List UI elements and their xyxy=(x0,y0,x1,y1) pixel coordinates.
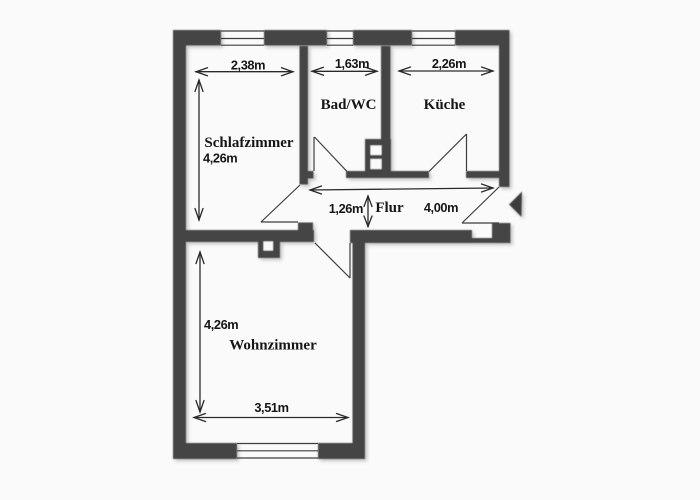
svg-text:1,26m: 1,26m xyxy=(329,201,363,216)
svg-text:2,26m: 2,26m xyxy=(432,56,466,71)
svg-text:2,38m: 2,38m xyxy=(231,58,265,73)
svg-text:Flur: Flur xyxy=(375,200,404,216)
svg-text:Wohnzimmer: Wohnzimmer xyxy=(229,338,317,354)
svg-text:4,26m: 4,26m xyxy=(203,151,237,166)
svg-text:Bad/WC: Bad/WC xyxy=(321,97,377,113)
svg-text:Schlafzimmer: Schlafzimmer xyxy=(204,135,293,151)
svg-text:1,63m: 1,63m xyxy=(335,56,369,71)
svg-text:4,26m: 4,26m xyxy=(204,317,238,332)
svg-text:3,51m: 3,51m xyxy=(254,400,288,415)
svg-text:4,00m: 4,00m xyxy=(424,200,458,215)
svg-text:Küche: Küche xyxy=(424,97,466,113)
